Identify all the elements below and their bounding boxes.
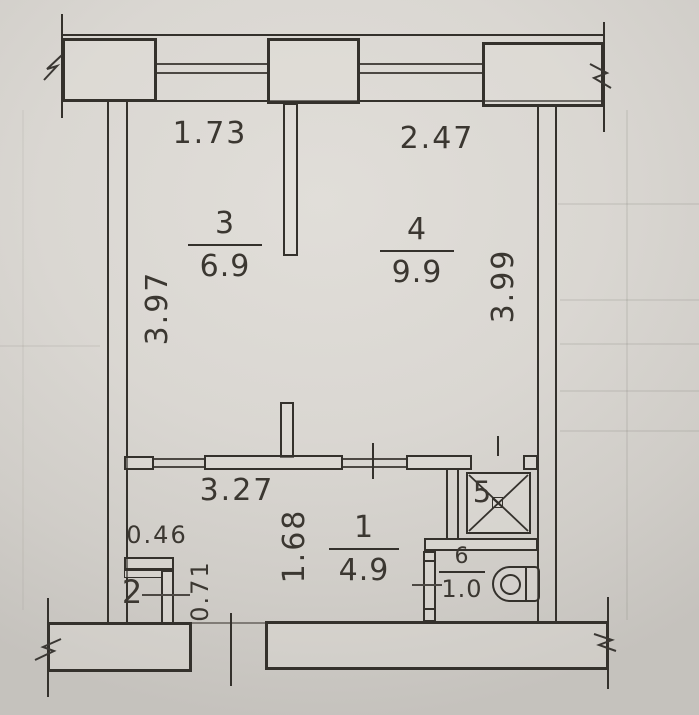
dim-top-left: 1.73 bbox=[164, 118, 256, 150]
dim-hall-width: 3.27 bbox=[190, 475, 284, 507]
room4-fraction-bar bbox=[380, 250, 454, 252]
dim-closet-depth: 0.71 bbox=[188, 555, 214, 627]
room3-label: 3 6.9 bbox=[183, 206, 267, 284]
room1-number: 1 bbox=[322, 510, 406, 545]
room6-fraction-bar bbox=[439, 571, 485, 573]
room3-number: 3 bbox=[183, 206, 267, 241]
room6-label: 6 1.0 bbox=[437, 544, 487, 603]
room4-label: 4 9.9 bbox=[375, 212, 459, 290]
break-mark bbox=[35, 639, 61, 660]
room3-fraction-bar bbox=[188, 244, 262, 246]
room1-label: 1 4.9 bbox=[322, 510, 406, 588]
break-mark bbox=[44, 55, 62, 80]
room5-number: 5 bbox=[468, 477, 498, 507]
room2-number: 2 bbox=[118, 576, 148, 610]
dim-right: 3.99 bbox=[488, 231, 522, 341]
room1-area: 4.9 bbox=[322, 553, 406, 588]
room3-area: 6.9 bbox=[183, 249, 267, 284]
room4-area: 9.9 bbox=[375, 255, 459, 290]
floor-plan-photo: 1.73 2.47 3.97 3.99 3.27 1.68 0.46 0.71 … bbox=[0, 0, 699, 715]
dim-closet-width: 0.46 bbox=[125, 523, 189, 548]
dim-hall-depth: 1.68 bbox=[279, 491, 313, 601]
dim-top-right: 2.47 bbox=[391, 123, 483, 155]
room6-area: 1.0 bbox=[437, 575, 487, 603]
room4-number: 4 bbox=[375, 212, 459, 247]
dim-left: 3.97 bbox=[142, 253, 176, 363]
break-mark bbox=[590, 64, 611, 88]
break-mark bbox=[594, 634, 616, 651]
room6-number: 6 bbox=[437, 544, 487, 569]
room1-fraction-bar bbox=[329, 548, 399, 550]
plan-linework-svg bbox=[0, 0, 699, 715]
